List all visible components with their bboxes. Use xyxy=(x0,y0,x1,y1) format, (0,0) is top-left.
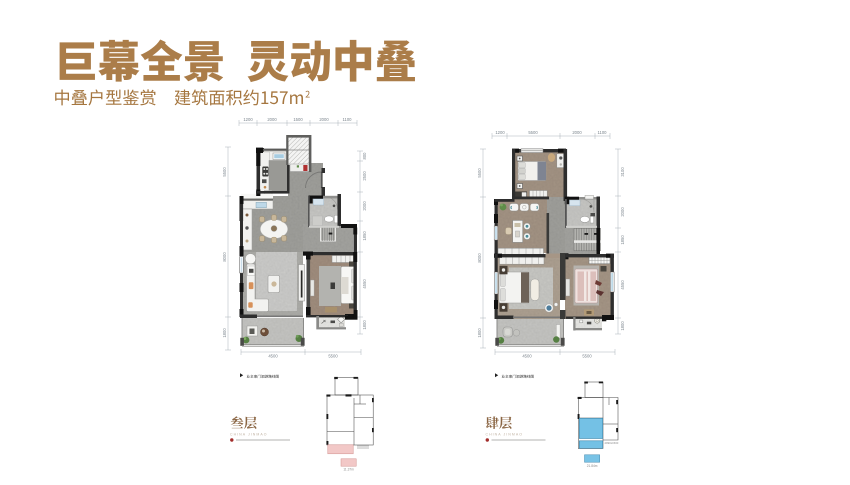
svg-text:1100: 1100 xyxy=(597,130,607,135)
svg-text:2000: 2000 xyxy=(572,130,582,135)
svg-text:800: 800 xyxy=(362,152,367,160)
svg-text:1800: 1800 xyxy=(362,320,367,330)
svg-text:21.84m: 21.84m xyxy=(587,464,598,468)
svg-text:1500: 1500 xyxy=(293,117,303,122)
svg-text:1800: 1800 xyxy=(222,328,227,338)
svg-text:2000: 2000 xyxy=(319,117,329,122)
svg-text:1800: 1800 xyxy=(477,328,482,338)
svg-text:1850: 1850 xyxy=(620,235,625,245)
svg-text:2000: 2000 xyxy=(362,201,367,211)
svg-text:5500: 5500 xyxy=(328,354,338,359)
svg-text:2000: 2000 xyxy=(620,207,625,217)
svg-text:2990x1500: 2990x1500 xyxy=(605,441,619,445)
svg-text:CHINA JINMAO: CHINA JINMAO xyxy=(486,432,524,436)
svg-text:11.37m: 11.37m xyxy=(343,467,354,471)
svg-text:8000: 8000 xyxy=(477,253,482,263)
svg-text:1200: 1200 xyxy=(495,130,505,135)
svg-text:5500: 5500 xyxy=(582,354,592,359)
svg-text:8000: 8000 xyxy=(222,252,227,262)
svg-text:2500: 2500 xyxy=(362,171,367,181)
svg-text:1200: 1200 xyxy=(243,117,253,122)
svg-text:5500: 5500 xyxy=(528,130,538,135)
svg-text:1800: 1800 xyxy=(620,321,625,331)
svg-text:3100: 3100 xyxy=(620,167,625,177)
svg-text:2000: 2000 xyxy=(267,117,277,122)
svg-text:5500: 5500 xyxy=(222,167,227,177)
svg-text:CHINA JINMAO: CHINA JINMAO xyxy=(230,432,268,436)
svg-text:4500: 4500 xyxy=(268,354,278,359)
svg-text:4550: 4550 xyxy=(620,280,625,290)
svg-text:1850: 1850 xyxy=(362,231,367,241)
svg-text:4550: 4550 xyxy=(362,279,367,289)
svg-text:5500: 5500 xyxy=(477,168,482,178)
svg-text:4500: 4500 xyxy=(522,354,532,359)
svg-text:1100: 1100 xyxy=(342,117,352,122)
